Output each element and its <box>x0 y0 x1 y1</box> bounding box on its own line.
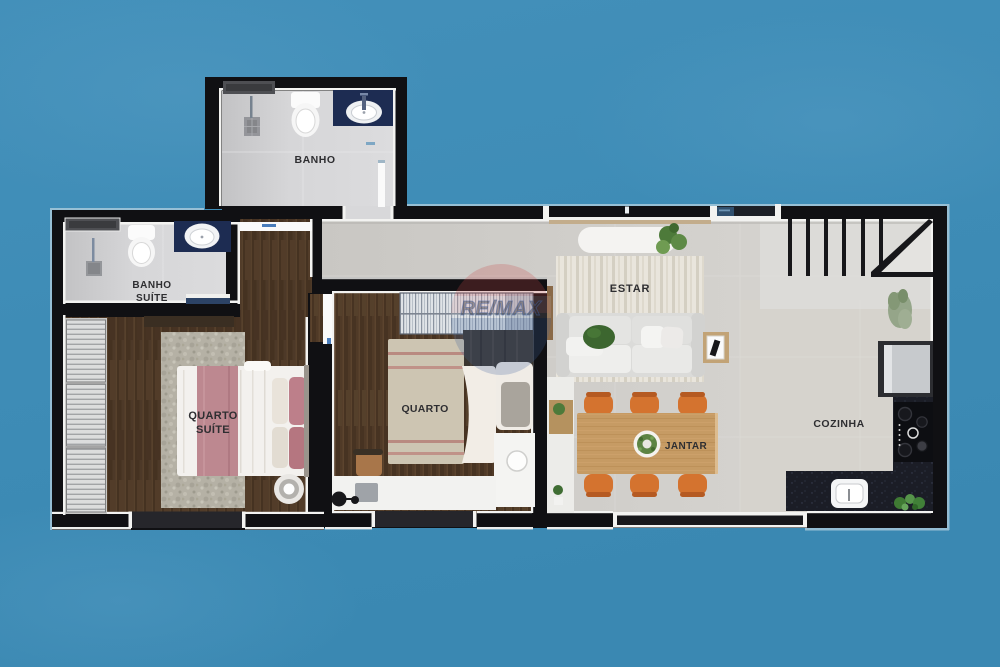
svg-text:SUÍTE: SUÍTE <box>136 291 168 304</box>
svg-text:RE/MAX: RE/MAX <box>461 298 543 320</box>
svg-text:QUARTO: QUARTO <box>188 410 237 422</box>
svg-text:BANHO: BANHO <box>295 154 336 166</box>
svg-text:BANHO: BANHO <box>132 280 171 291</box>
svg-text:JANTAR: JANTAR <box>665 441 708 452</box>
svg-text:SUÍTE: SUÍTE <box>196 423 230 436</box>
svg-text:ESTAR: ESTAR <box>610 283 650 295</box>
svg-text:COZINHA: COZINHA <box>813 418 864 430</box>
svg-text:QUARTO: QUARTO <box>401 403 448 415</box>
